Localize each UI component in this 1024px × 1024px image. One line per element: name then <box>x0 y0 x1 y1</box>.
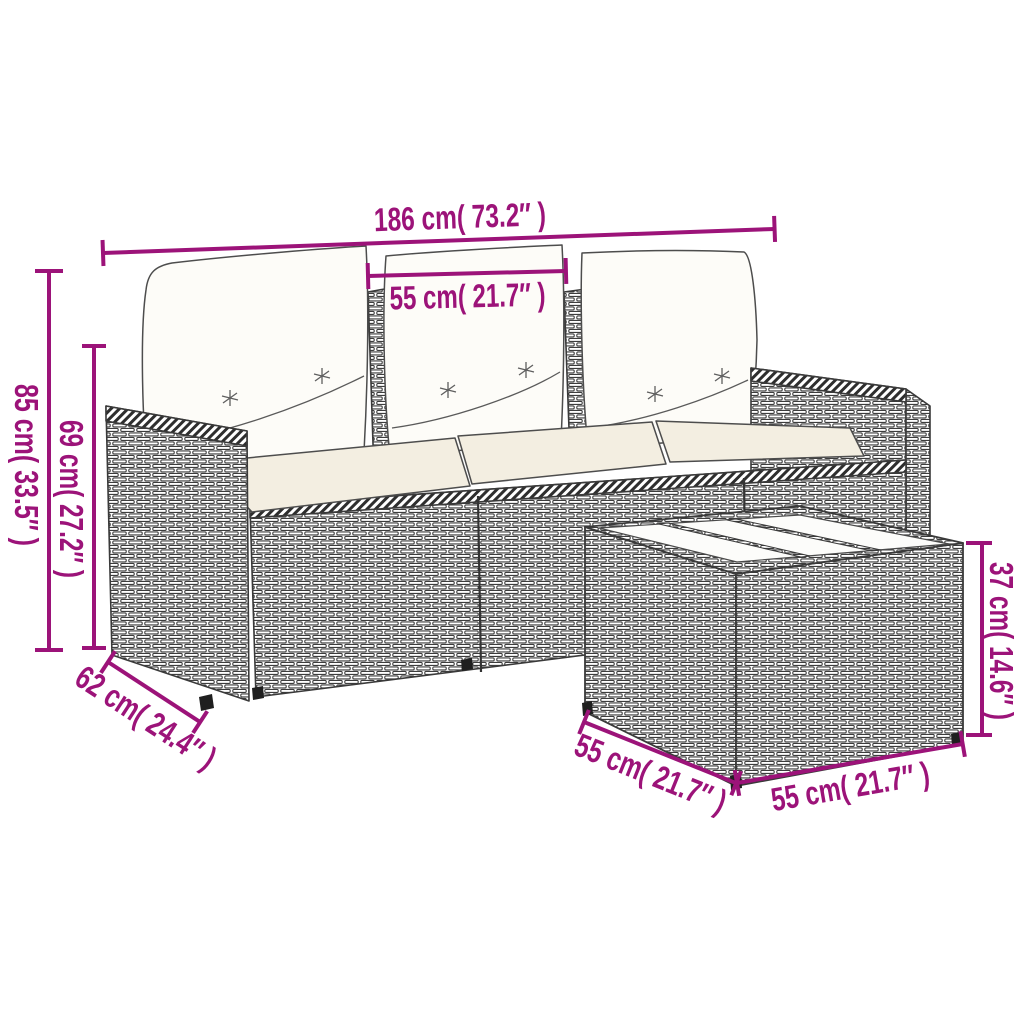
product-image: 186 cm( 73.2″ ) 55 cm( 21.7″ ) 85 cm( 33… <box>0 0 1024 1024</box>
dimension-table-height: 37 cm( 14.6″ ) <box>966 543 1020 735</box>
sofa-armrest-left <box>106 406 249 701</box>
dimension-label-total-height: 85 cm( 33.5″ ) <box>8 384 45 546</box>
back-cushion-right <box>581 251 757 448</box>
seat-cushion-right <box>656 421 864 462</box>
dimension-label-table-height: 37 cm( 14.6″ ) <box>983 562 1020 720</box>
dimension-label-backrest-height: 69 cm( 27.2″ ) <box>53 420 90 578</box>
dimension-label-seat-width: 55 cm( 21.7″ ) <box>389 276 546 317</box>
dimension-backrest-height: 69 cm( 27.2″ ) <box>53 346 106 648</box>
dimension-diagram: 186 cm( 73.2″ ) 55 cm( 21.7″ ) 85 cm( 33… <box>0 0 1024 1024</box>
armrest-left-front <box>106 406 249 701</box>
dimension-label-total-width: 186 cm( 73.2″ ) <box>373 195 546 238</box>
coffee-table <box>582 506 963 790</box>
